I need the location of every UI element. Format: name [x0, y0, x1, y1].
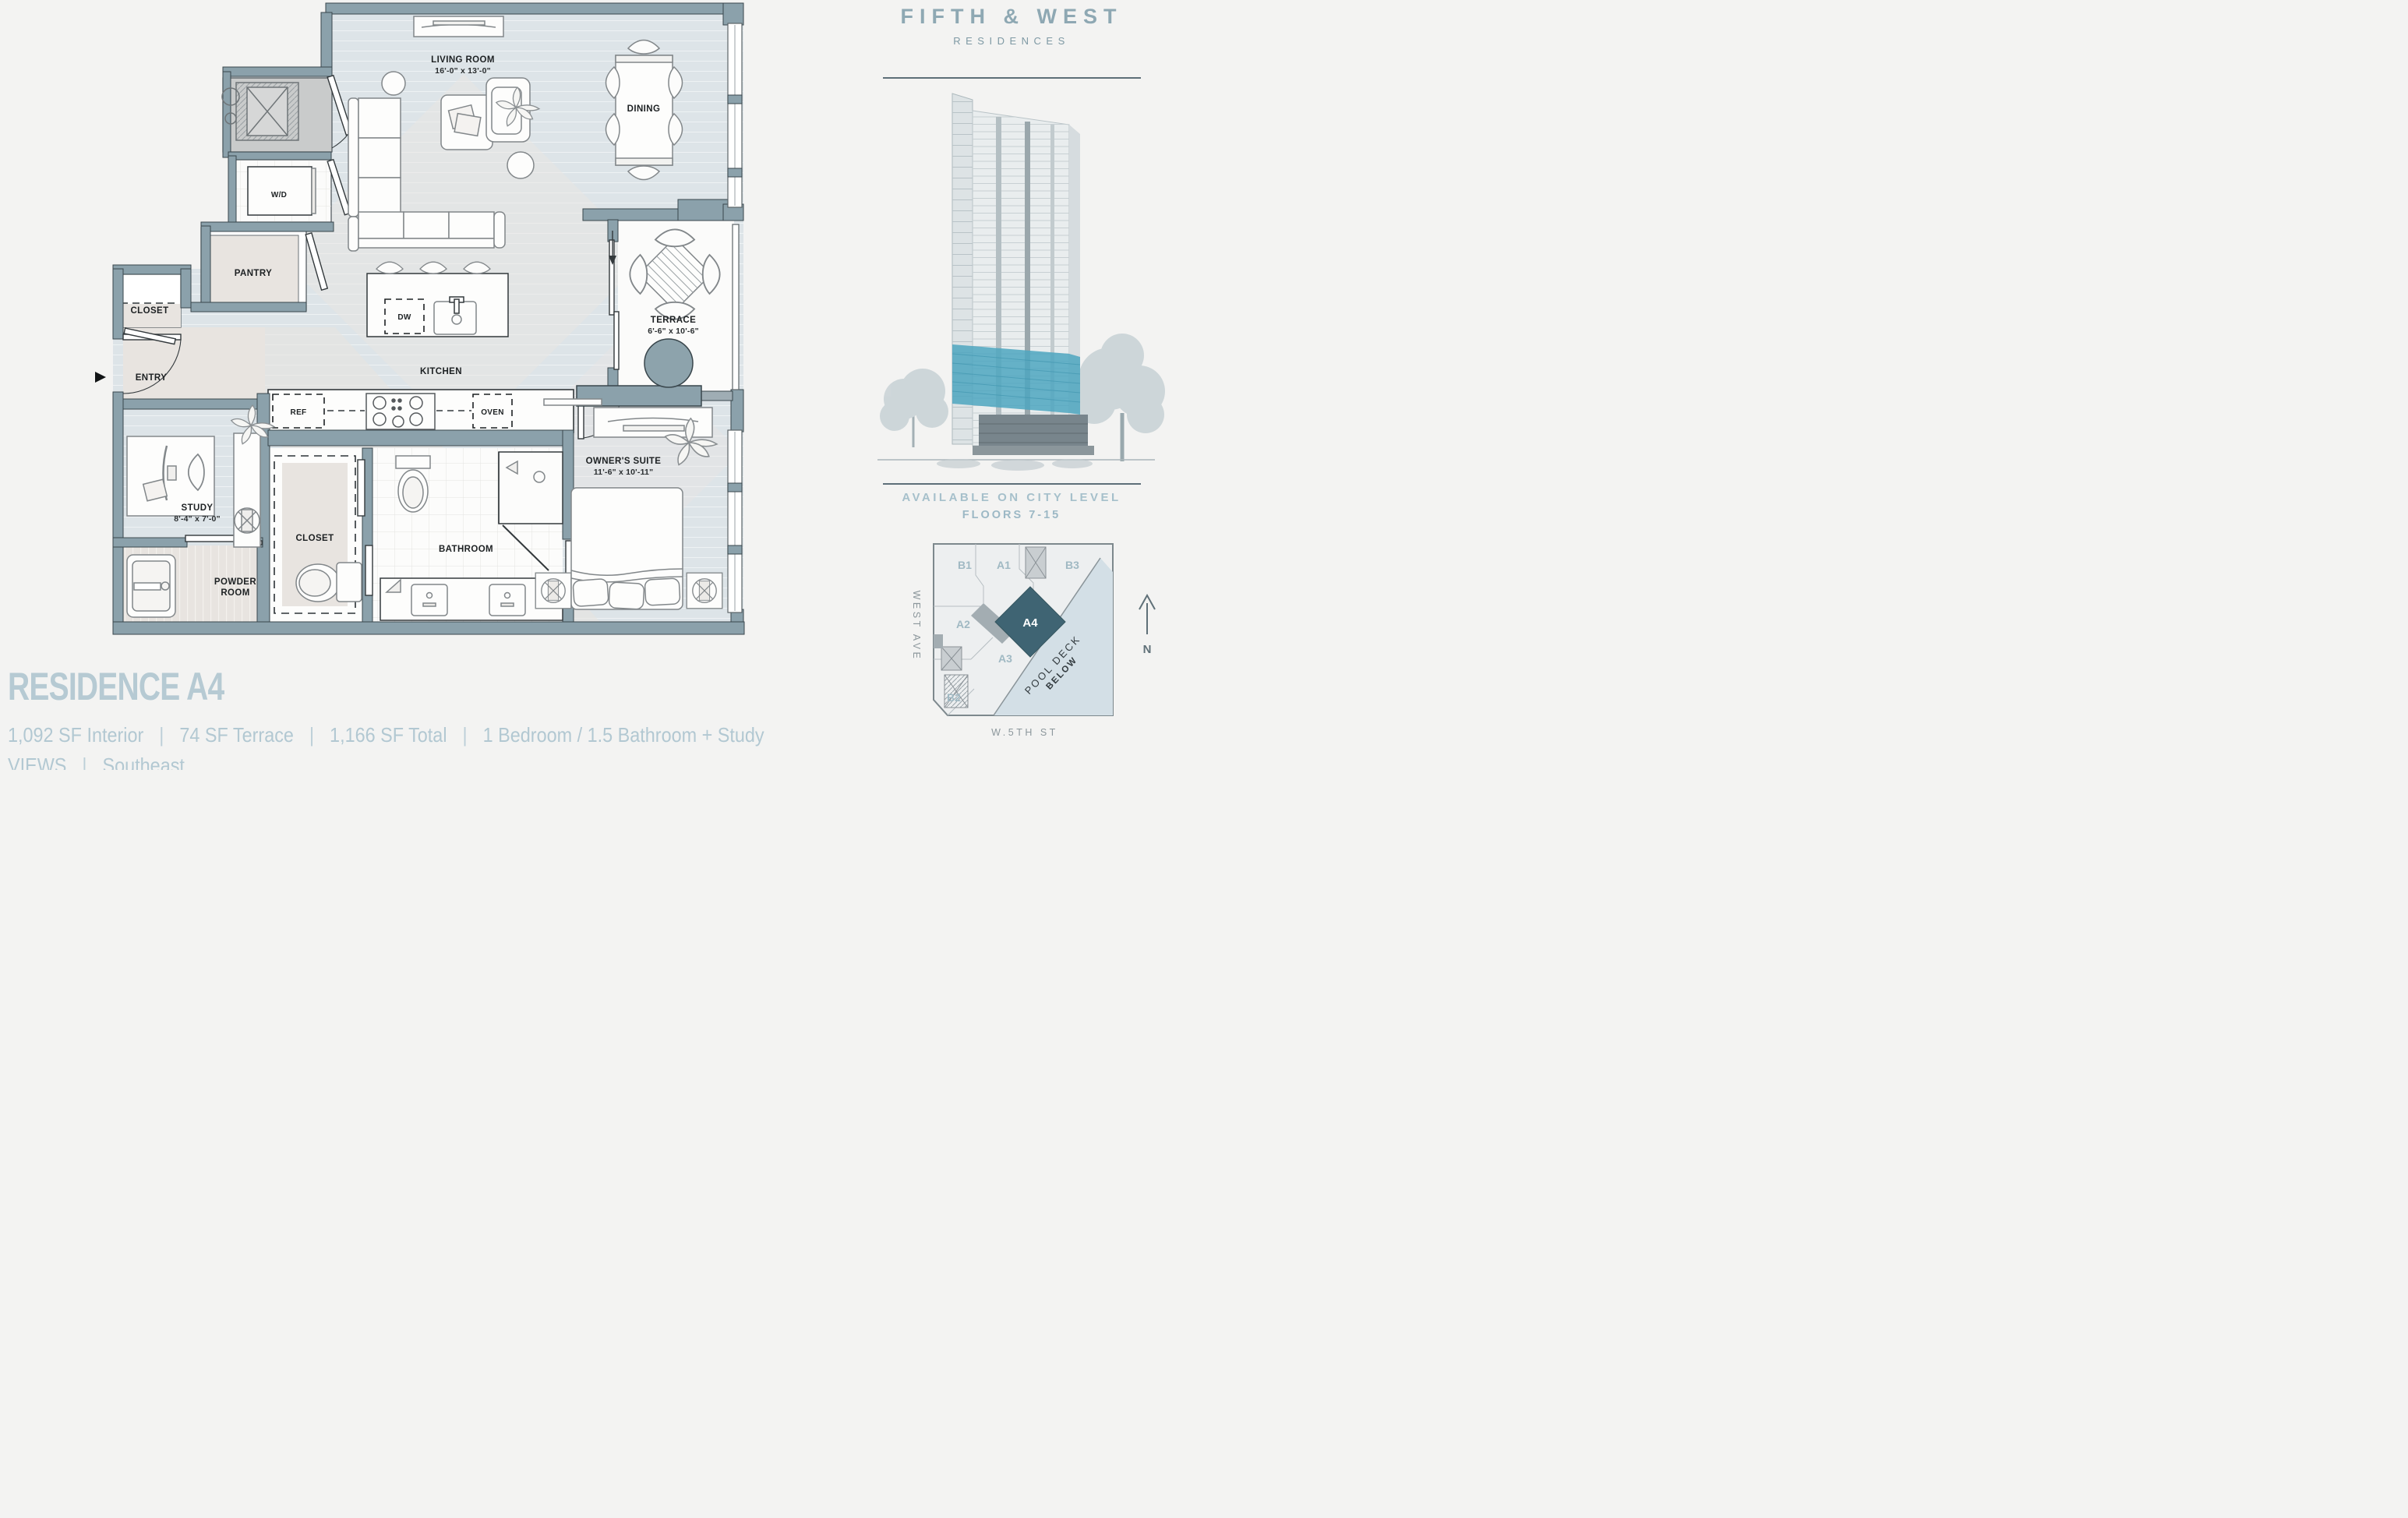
- site-unit-a4: A4: [1022, 616, 1038, 630]
- availability-line1: AVAILABLE ON CITY LEVEL: [871, 491, 1152, 504]
- stat-terrace: 74 SF Terrace: [179, 723, 294, 747]
- pantry-label: PANTRY: [235, 269, 272, 278]
- views-value: Southeast: [103, 754, 185, 770]
- site-unit-a3: A3: [998, 652, 1012, 665]
- powder-room-label-2: ROOM: [221, 588, 249, 598]
- site-unit-b2: B2: [947, 691, 961, 704]
- residence-info: RESIDENCE A4 1,092 SF Interior | 74 SF T…: [8, 664, 849, 770]
- street-w5th-st: W.5TH ST: [991, 727, 1058, 738]
- ref-label: REF: [291, 408, 307, 417]
- living-room-label: LIVING ROOM: [431, 55, 495, 65]
- bathroom-label: BATHROOM: [439, 545, 493, 554]
- brand-name: FIFTH & WEST: [871, 5, 1152, 29]
- study-label: STUDY: [182, 503, 214, 513]
- residence-views: VIEWS | Southeast: [8, 754, 765, 770]
- study-dims: 8'-4" x 7'-0": [174, 514, 221, 524]
- site-unit-a1: A1: [997, 559, 1011, 571]
- page-title: RESIDENCE A4: [8, 664, 664, 709]
- views-label: VIEWS: [8, 754, 66, 770]
- site-unit-a2: A2: [956, 618, 970, 630]
- terrace-dims: 6'-6" x 10'-6": [648, 327, 699, 336]
- street-west-ave: WEST AVE: [911, 591, 922, 662]
- living-room-dims: 16'-0" x 13'-0": [435, 66, 491, 76]
- brand-subtitle: RESIDENCES: [871, 35, 1152, 47]
- oven-label: OVEN: [481, 408, 504, 417]
- wd-label: W/D: [271, 191, 287, 199]
- stat-interior: 1,092 SF Interior: [8, 723, 143, 747]
- owner-closet-label: CLOSET: [295, 534, 334, 543]
- north-label: N: [1143, 643, 1152, 656]
- dw-label: DW: [397, 313, 411, 322]
- site-plan: B1 A1 B3 A2 A3 B2 A4 POOL DECK BELOW WES…: [896, 528, 1177, 762]
- stat-separator: |: [463, 723, 468, 747]
- kitchen-label: KITCHEN: [420, 367, 462, 376]
- building-rendering: [865, 79, 1169, 482]
- residence-stats: 1,092 SF Interior | 74 SF Terrace | 1,16…: [8, 723, 765, 747]
- divider-bottom: [883, 483, 1141, 485]
- stat-separator: |: [309, 723, 314, 747]
- stat-separator: |: [159, 723, 164, 747]
- stat-total: 1,166 SF Total: [330, 723, 447, 747]
- north-arrow-icon: N: [1139, 595, 1155, 656]
- views-separator: |: [82, 754, 87, 770]
- floor-plan: LIVING ROOM 16'-0" x 13'-0" DINING KITCH…: [0, 0, 857, 655]
- availability-line2: FLOORS 7-15: [871, 509, 1152, 521]
- terrace-label: TERRACE: [651, 316, 696, 325]
- entry-label: ENTRY: [136, 373, 168, 383]
- site-unit-b1: B1: [958, 559, 972, 571]
- availability: AVAILABLE ON CITY LEVEL FLOORS 7-15: [871, 491, 1152, 521]
- stat-bed-bath: 1 Bedroom / 1.5 Bathroom + Study: [483, 723, 764, 747]
- entry-closet-label: CLOSET: [130, 306, 168, 316]
- divider-top: [883, 77, 1141, 79]
- powder-room-label-1: POWDER: [214, 577, 256, 587]
- owners-suite-label: OWNER'S SUITE: [586, 457, 662, 466]
- owners-suite-dims: 11'-6" x 10'-11": [594, 468, 654, 477]
- brochure-page: LIVING ROOM 16'-0" x 13'-0" DINING KITCH…: [0, 0, 1205, 770]
- dining-label: DINING: [627, 104, 661, 114]
- site-unit-b3: B3: [1065, 559, 1079, 571]
- brand-header: FIFTH & WEST RESIDENCES: [871, 5, 1152, 47]
